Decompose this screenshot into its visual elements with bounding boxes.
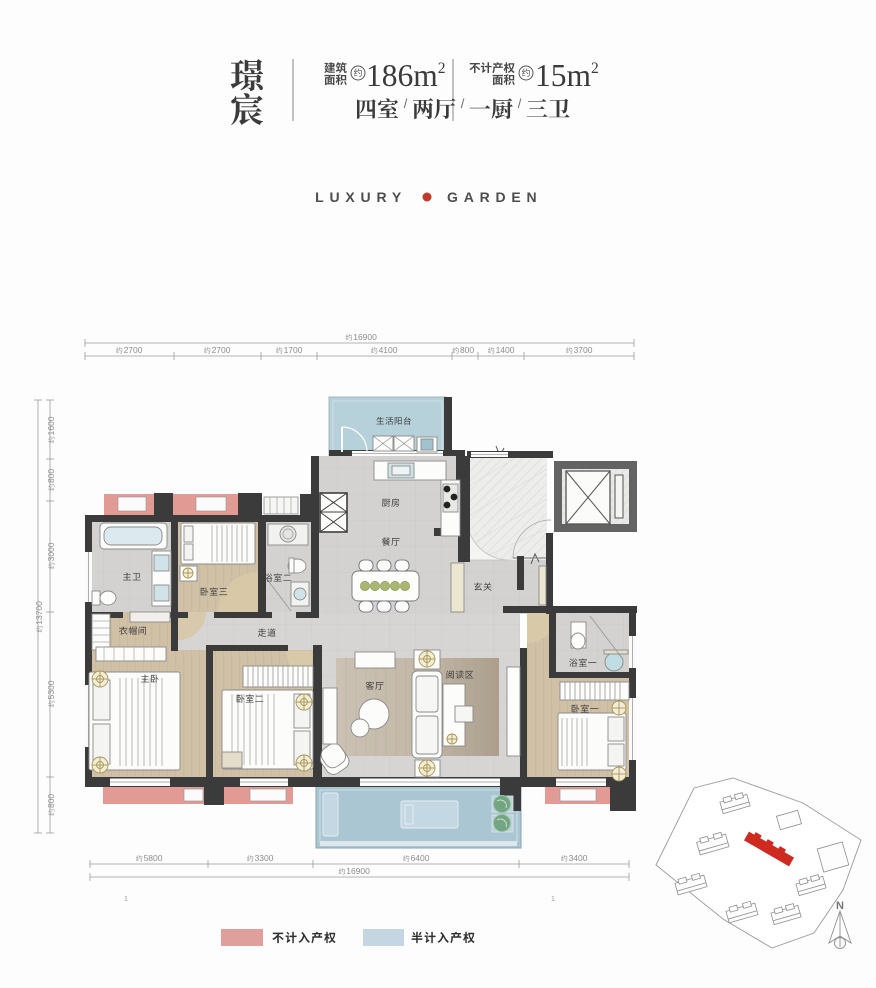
- svg-text:16900: 16900: [346, 866, 370, 876]
- svg-text:16900: 16900: [353, 332, 377, 342]
- svg-text:3700: 3700: [574, 345, 593, 355]
- svg-text:3300: 3300: [255, 853, 274, 863]
- svg-text:1600: 1600: [46, 416, 56, 435]
- svg-text:5300: 5300: [46, 680, 56, 699]
- svg-text:800: 800: [46, 794, 56, 808]
- svg-text:GARDEN: GARDEN: [447, 189, 542, 205]
- svg-text:4100: 4100: [379, 345, 398, 355]
- svg-text:13700: 13700: [34, 601, 44, 625]
- svg-text:186m2: 186m2: [366, 58, 446, 93]
- svg-text:1: 1: [124, 896, 128, 903]
- svg-text:N: N: [836, 900, 844, 912]
- svg-text:1700: 1700: [284, 345, 303, 355]
- svg-text:LUXURY: LUXURY: [315, 189, 407, 205]
- svg-text:6400: 6400: [411, 853, 430, 863]
- svg-text:1: 1: [551, 896, 555, 903]
- svg-text:/: /: [404, 96, 408, 111]
- svg-text:5800: 5800: [144, 853, 163, 863]
- svg-text:800: 800: [460, 345, 474, 355]
- svg-text:3400: 3400: [569, 853, 588, 863]
- svg-text:1400: 1400: [496, 345, 515, 355]
- svg-text:/: /: [461, 96, 465, 111]
- svg-text:15m2: 15m2: [535, 58, 599, 93]
- svg-text:3000: 3000: [46, 542, 56, 561]
- svg-text:/: /: [518, 96, 522, 111]
- svg-text:2700: 2700: [212, 345, 231, 355]
- svg-text:2700: 2700: [124, 345, 143, 355]
- svg-text:800: 800: [46, 469, 56, 483]
